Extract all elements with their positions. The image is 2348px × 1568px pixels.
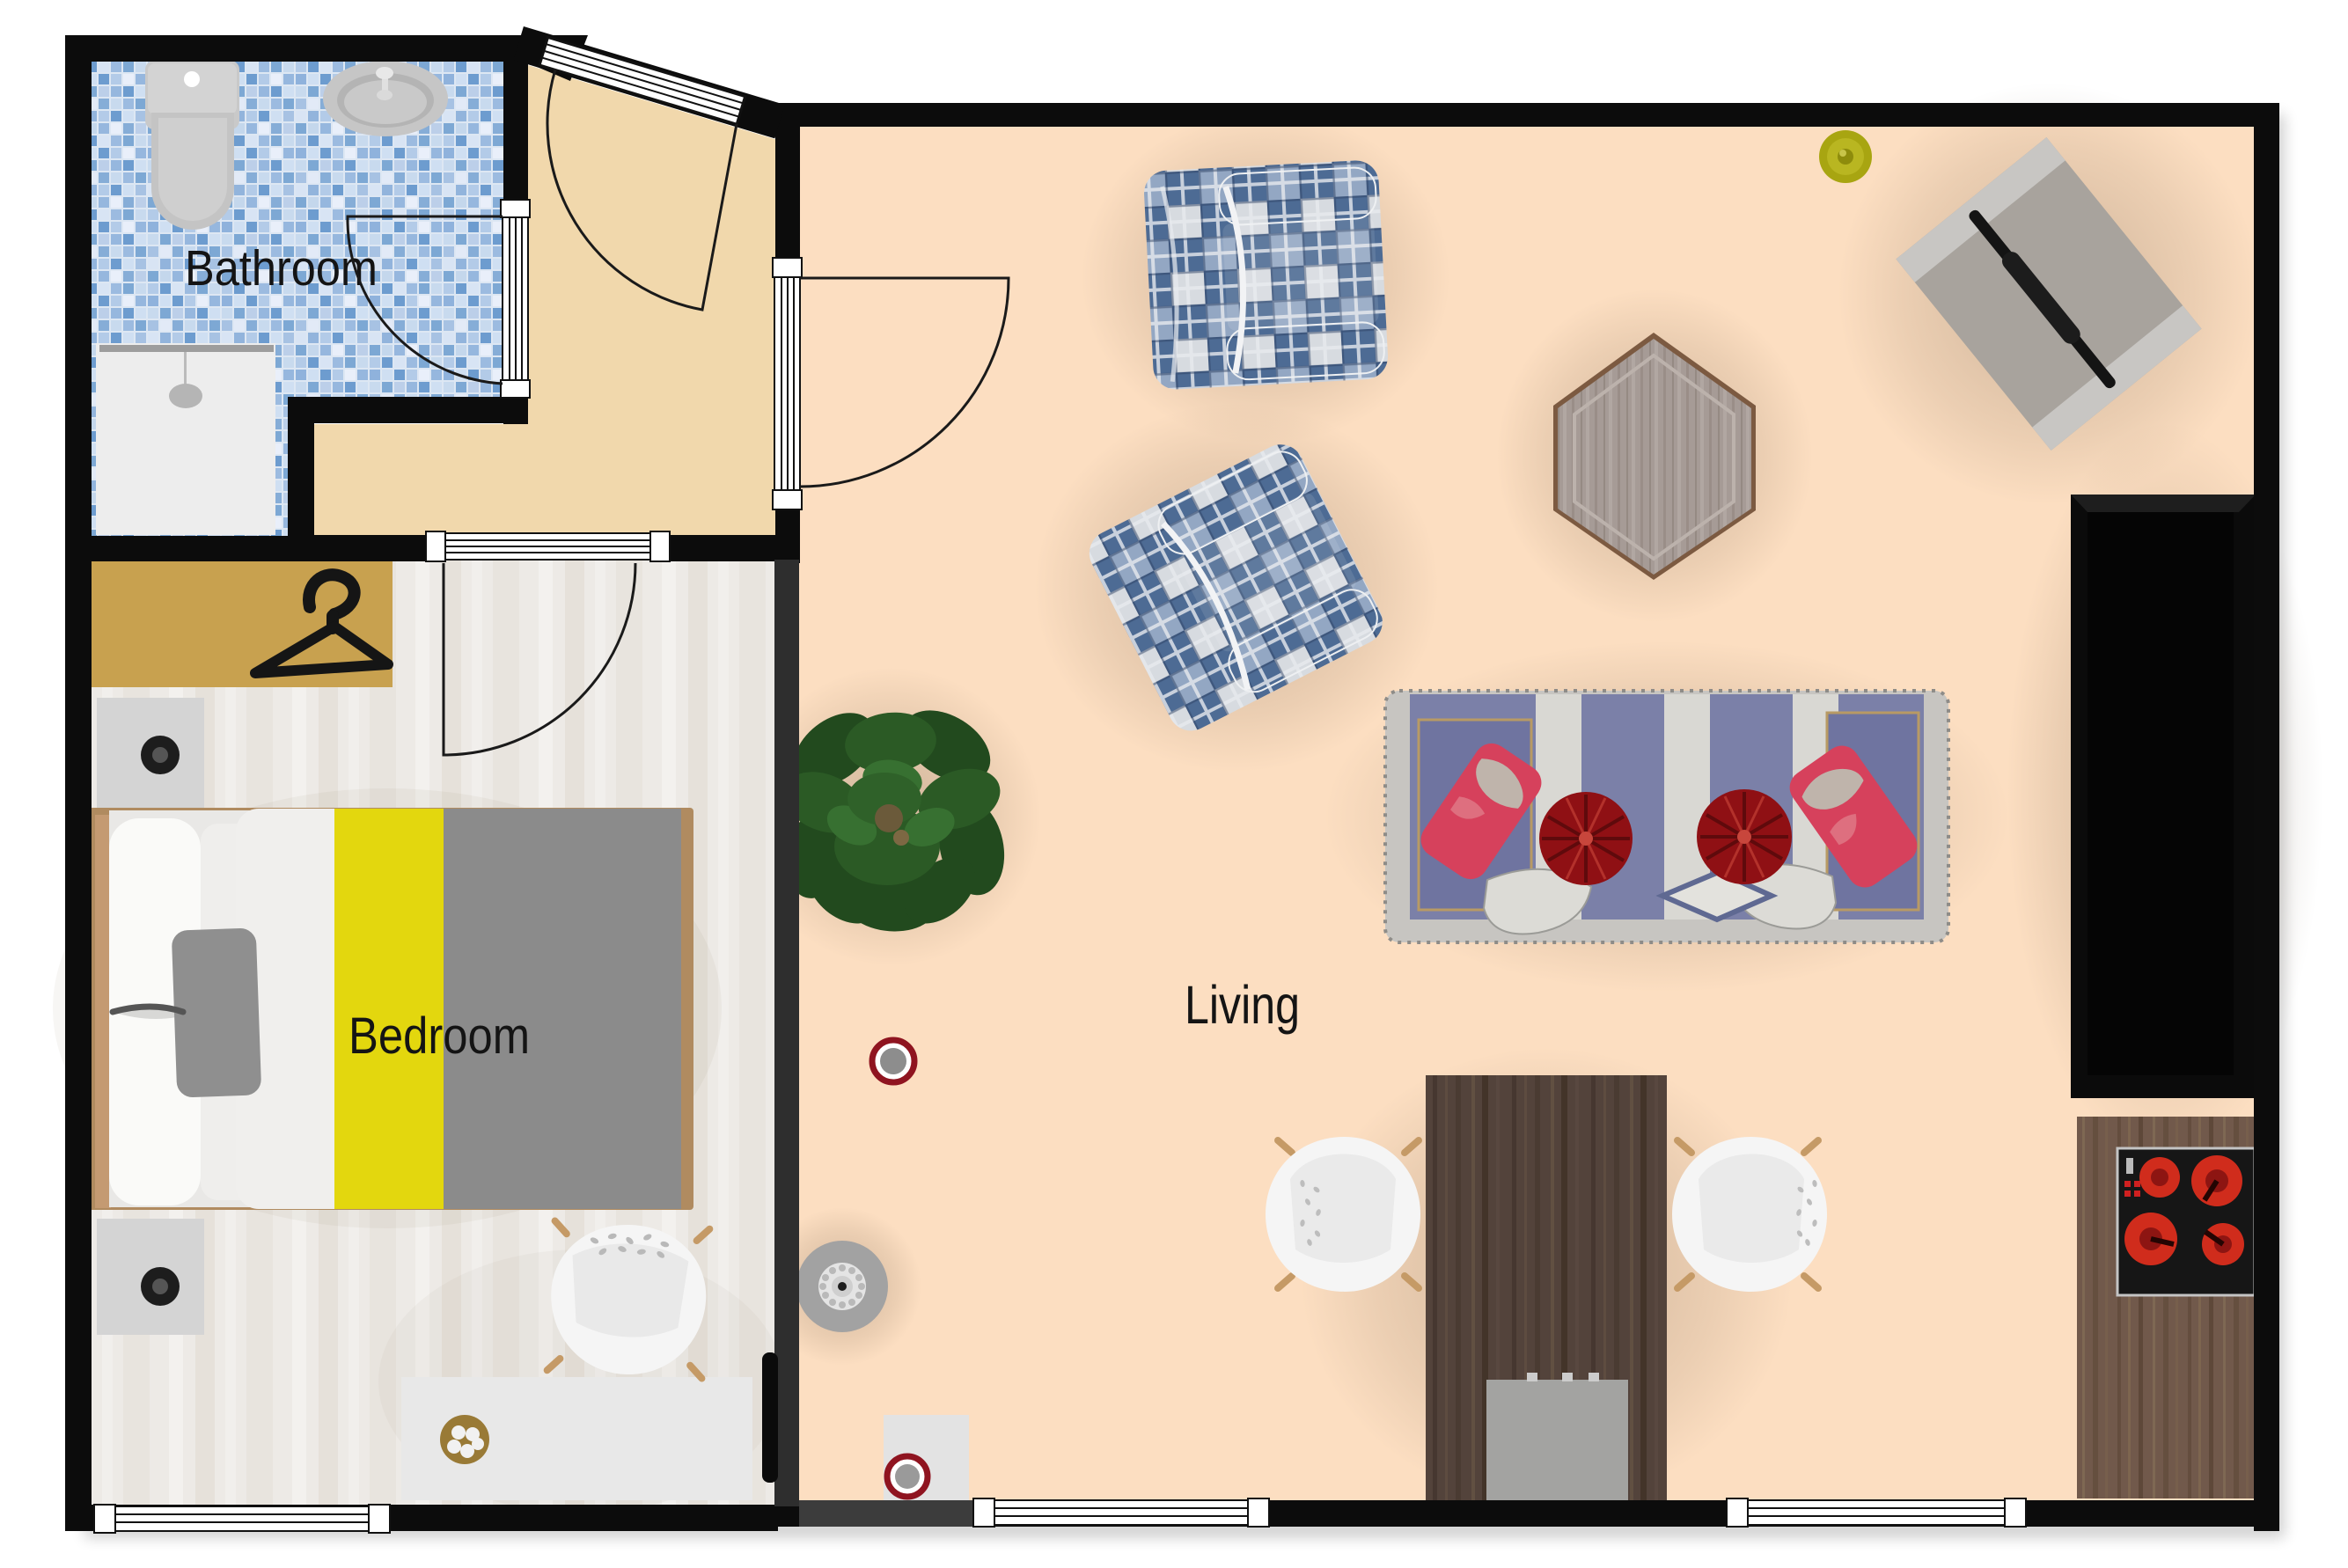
svg-text:Bedroom: Bedroom (349, 1007, 530, 1065)
svg-text:Living: Living (1185, 975, 1300, 1035)
svg-text:Bathroom: Bathroom (185, 240, 378, 297)
